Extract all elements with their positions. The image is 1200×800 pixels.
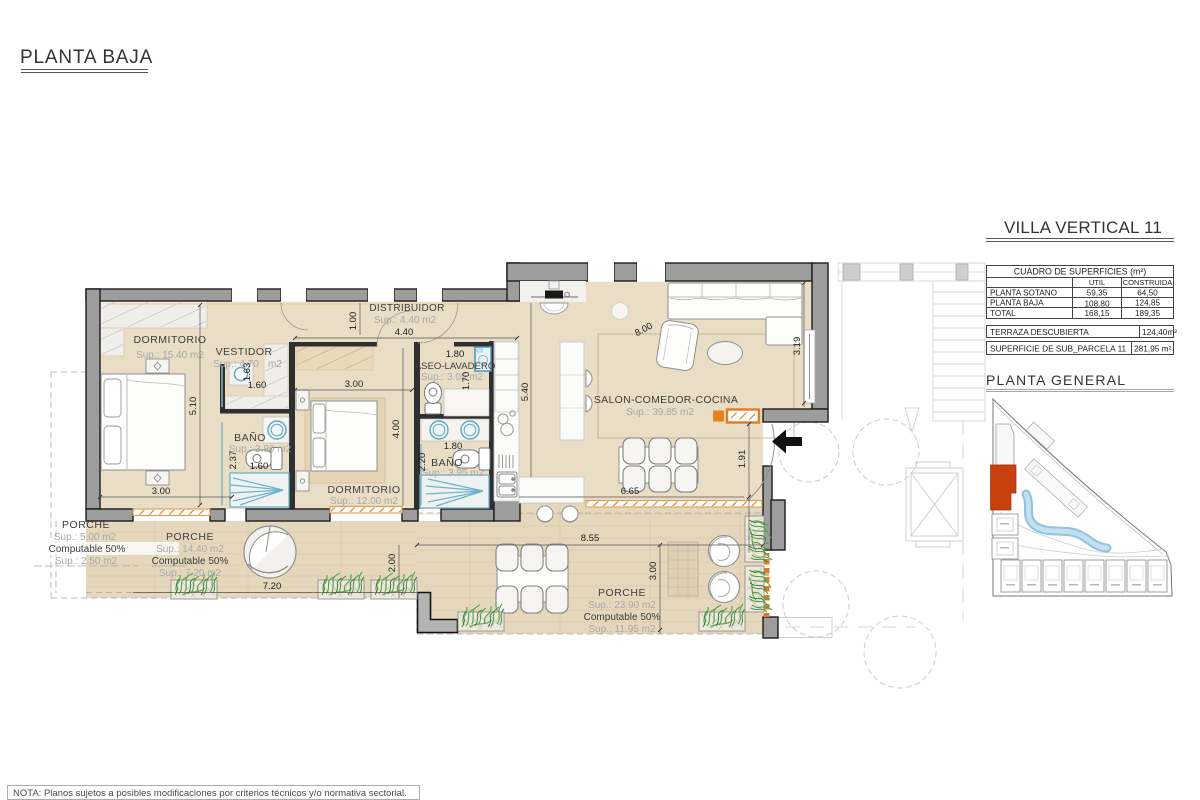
- svg-text:189,35: 189,35: [1135, 309, 1160, 318]
- svg-text:1.70: 1.70: [461, 372, 472, 391]
- svg-text:NOTA: Planos sujetos a posible: NOTA: Planos sujetos a posibles modifica…: [13, 788, 407, 799]
- svg-text:CONSTRUIDA: CONSTRUIDA: [1123, 278, 1173, 287]
- svg-text:VESTIDOR: VESTIDOR: [216, 346, 273, 358]
- svg-text:PLANTA SOTANO: PLANTA SOTANO: [990, 289, 1057, 298]
- svg-text:124,85: 124,85: [1135, 299, 1160, 308]
- svg-text:Sup.: 7.20 m2: Sup.: 7.20 m2: [159, 568, 222, 579]
- svg-text:Sup.: 3.05 m2: Sup.: 3.05 m2: [421, 372, 484, 383]
- svg-text:PORCHE: PORCHE: [62, 519, 110, 531]
- svg-text:5.40: 5.40: [520, 383, 531, 402]
- svg-text:TOTAL: TOTAL: [990, 309, 1016, 318]
- svg-text:1.80: 1.80: [446, 349, 465, 360]
- svg-text:PLANTA BAJA: PLANTA BAJA: [20, 47, 153, 68]
- svg-text:3.00: 3.00: [648, 562, 659, 581]
- svg-text:124,40m²: 124,40m²: [1142, 327, 1177, 337]
- svg-text:Sup.: 23.90 m2: Sup.: 23.90 m2: [588, 600, 656, 611]
- svg-text:1.63: 1.63: [242, 363, 253, 382]
- svg-text:1.60: 1.60: [250, 461, 269, 472]
- svg-text:SALON-COMEDOR-COCINA: SALON-COMEDOR-COCINA: [594, 394, 738, 406]
- svg-text:m2: m2: [268, 359, 282, 370]
- svg-text:3.19: 3.19: [792, 337, 803, 356]
- svg-text:Computable 50%: Computable 50%: [49, 544, 126, 555]
- svg-text:CUADRO DE SUPERFICIES (m²): CUADRO DE SUPERFICIES (m²): [1014, 267, 1147, 277]
- svg-text:281,95 m²: 281,95 m²: [1134, 344, 1172, 354]
- svg-text:Sup.: 2.50 m2: Sup.: 2.50 m2: [55, 556, 118, 567]
- svg-text:Sup.: 11.95 m2: Sup.: 11.95 m2: [588, 624, 656, 635]
- svg-text:Sup.: 39.85 m2: Sup.: 39.85 m2: [626, 407, 694, 418]
- svg-text:Sup.: 15.40 m2: Sup.: 15.40 m2: [136, 350, 204, 361]
- svg-text:BAÑO: BAÑO: [234, 431, 266, 444]
- svg-text:Sup.: 12.00 m2: Sup.: 12.00 m2: [330, 496, 398, 507]
- svg-text:1.00: 1.00: [348, 312, 359, 331]
- svg-text:5.10: 5.10: [188, 397, 199, 416]
- svg-text:ASEO-LAVADERO: ASEO-LAVADERO: [415, 361, 496, 372]
- svg-text:2.00: 2.00: [387, 554, 398, 573]
- svg-text:2.20: 2.20: [417, 453, 428, 472]
- svg-text:DORMITORIO: DORMITORIO: [133, 334, 206, 346]
- svg-text:2.37: 2.37: [228, 451, 239, 470]
- svg-text:TERRAZA DESCUBIERTA: TERRAZA DESCUBIERTA: [990, 327, 1089, 337]
- svg-text:PORCHE: PORCHE: [598, 587, 646, 599]
- svg-text:DISTRIBUIDOR: DISTRIBUIDOR: [369, 303, 444, 314]
- svg-text:7.20: 7.20: [263, 581, 282, 592]
- svg-text:1.80: 1.80: [444, 441, 463, 452]
- svg-text:108,80: 108,80: [1084, 300, 1109, 309]
- svg-text:4.00: 4.00: [391, 420, 402, 439]
- svg-text:59,35: 59,35: [1087, 289, 1108, 298]
- svg-text:1.91: 1.91: [737, 450, 748, 469]
- svg-text:SUPERFICIE DE SUB_PARCELA 11: SUPERFICIE DE SUB_PARCELA 11: [990, 344, 1127, 354]
- svg-text:PLANTA GENERAL: PLANTA GENERAL: [986, 372, 1126, 388]
- svg-text:3.00: 3.00: [345, 379, 364, 390]
- svg-text:Computable 50%: Computable 50%: [584, 612, 661, 623]
- svg-text:8.55: 8.55: [581, 533, 600, 544]
- svg-text:Sup.: 3.95 m2: Sup.: 3.95 m2: [422, 468, 485, 479]
- svg-text:VILLA VERTICAL 11: VILLA VERTICAL 11: [1004, 218, 1162, 237]
- svg-text:Sup.: 5.00 m2: Sup.: 5.00 m2: [54, 532, 117, 543]
- svg-text:3.00: 3.00: [152, 486, 171, 497]
- svg-text:PLANTA BAJA: PLANTA BAJA: [990, 299, 1044, 308]
- svg-text:6.65: 6.65: [621, 486, 640, 497]
- svg-text:DORMITORIO: DORMITORIO: [327, 484, 400, 496]
- svg-text:168,15: 168,15: [1084, 309, 1109, 318]
- svg-text:64,50: 64,50: [1137, 289, 1158, 298]
- svg-text:4.40: 4.40: [395, 327, 414, 338]
- svg-text:UTIL: UTIL: [1089, 278, 1105, 287]
- svg-text:Sup.: 4.40 m2: Sup.: 4.40 m2: [374, 315, 437, 326]
- svg-text:PORCHE: PORCHE: [166, 531, 214, 543]
- svg-text:Sup.: 14.40 m2: Sup.: 14.40 m2: [156, 544, 224, 555]
- svg-text:Computable 50%: Computable 50%: [152, 556, 229, 567]
